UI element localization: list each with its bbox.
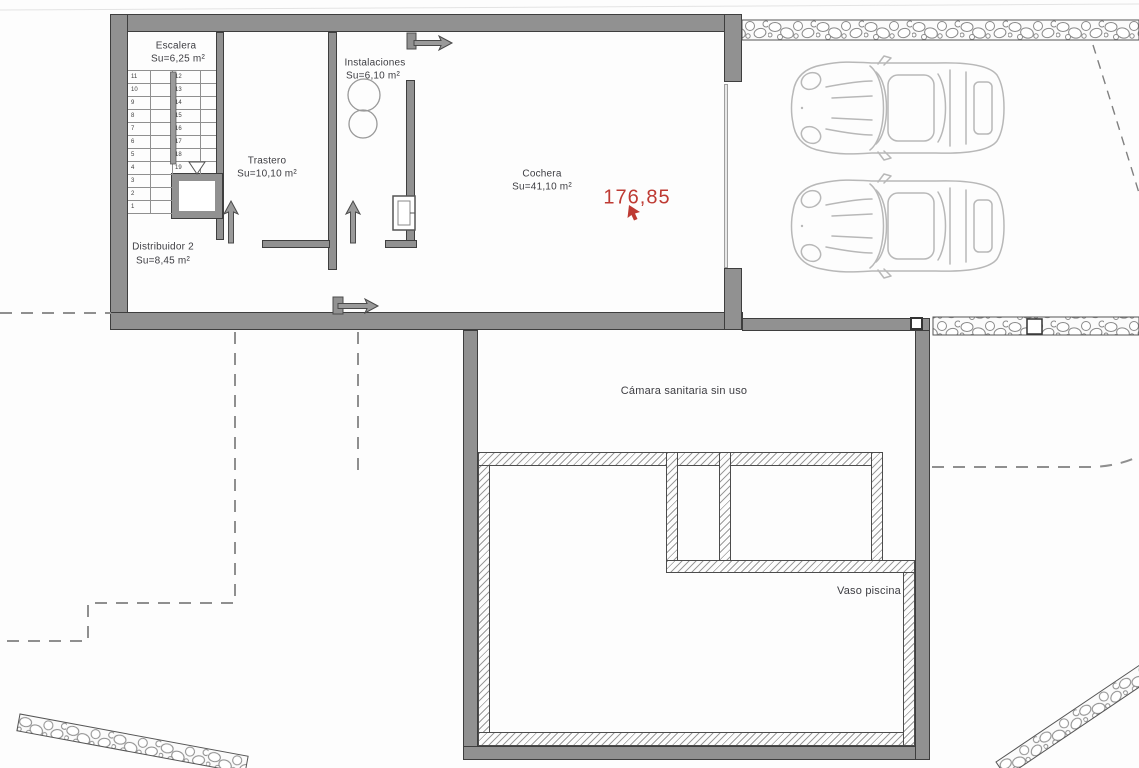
stone-wall-middle-right <box>933 317 1139 335</box>
door-swing-icon-top <box>414 36 452 50</box>
door-swing-icon-trastero <box>224 201 238 243</box>
wall-end-square <box>911 318 922 329</box>
stone-wall-top-right <box>742 20 1139 40</box>
room-label-escalera: Escalera <box>156 41 197 52</box>
room-label-trastero: Trastero <box>248 156 286 167</box>
door-swing-icon-instalaciones <box>346 201 360 243</box>
car-outline-2 <box>792 174 1005 278</box>
room-area-distribuidor: Su=8,45 m² <box>136 256 190 267</box>
stone-wall-bottom-left <box>17 714 248 768</box>
door-swing-icon-garage-exit <box>338 299 378 313</box>
room-area-instalaciones: Su=6,10 m² <box>346 71 400 82</box>
electrical-panel <box>393 196 415 230</box>
floor-plan: 1110987654321 1213141516171819 <box>0 0 1139 768</box>
column-square <box>1027 319 1042 334</box>
room-label-instalaciones: Instalaciones <box>345 58 406 69</box>
car-outline-1 <box>792 56 1005 160</box>
boundary-dashed-lines <box>0 313 1139 641</box>
equipment-tank-icons <box>348 79 380 138</box>
terrain-dashed-curve <box>1093 45 1139 193</box>
room-label-distribuidor: Distribuidor 2 <box>132 242 194 253</box>
room-area-cochera: Su=41,10 m² <box>512 182 572 193</box>
stair-direction-arrow <box>171 72 206 174</box>
stone-wall-bottom-right <box>996 659 1139 768</box>
room-label-cochera: Cochera <box>522 169 561 180</box>
scan-edge-line <box>0 4 1139 10</box>
plan-drawing-layer <box>0 0 1139 768</box>
room-area-trastero: Su=10,10 m² <box>237 169 297 180</box>
room-label-vaso-piscina: Vaso piscina <box>837 585 901 597</box>
room-label-camara-sanitaria: Cámara sanitaria sin uso <box>621 385 747 397</box>
room-area-escalera: Su=6,25 m² <box>151 54 205 65</box>
surface-measurement-value: 176,85 <box>603 187 670 210</box>
